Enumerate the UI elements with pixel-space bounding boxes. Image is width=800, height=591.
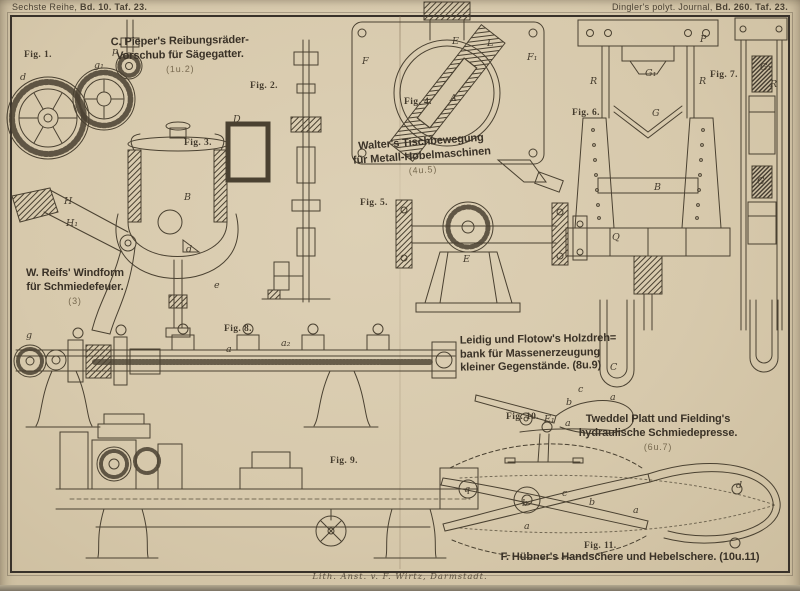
figure-label: Fig. 5. (360, 198, 388, 208)
figure-label: Fig. 6. (572, 108, 600, 118)
part-letter: R (590, 76, 597, 87)
part-letter: d (186, 244, 192, 255)
figure-label: Fig. 4. (404, 97, 432, 107)
part-letter: b (566, 397, 572, 408)
part-letter: a (610, 392, 616, 403)
part-letter: g₁ (94, 60, 104, 71)
part-letter: q (464, 484, 470, 495)
part-letter: a (226, 344, 232, 355)
part-letter: b (589, 497, 595, 508)
title-figref: (3) (10, 295, 140, 309)
part-letter: G₁ (645, 68, 656, 79)
part-letter: G (757, 176, 765, 187)
part-letter: p (112, 46, 118, 57)
part-letter: a (524, 521, 530, 532)
part-letter: P (700, 34, 706, 45)
part-letter: A (450, 93, 457, 104)
part-letter: B (654, 182, 661, 193)
part-letter: d (736, 480, 742, 491)
part-letter: D (233, 114, 241, 125)
figure-label: Fig. 2. (250, 81, 278, 91)
figure-label: Fig. 7. (710, 70, 738, 80)
part-letter: R (699, 76, 706, 87)
part-letter: B (184, 192, 191, 203)
title-figref: (6u.7) (552, 441, 764, 455)
part-letter: C (610, 362, 617, 373)
part-letter: a (565, 418, 571, 429)
plate-page: Sechste Reihe, Bd. 10. Taf. 23. Dingler'… (0, 0, 800, 591)
figure-label: Fig. 10. (506, 412, 539, 422)
figure-label: Fig. 8. (224, 324, 252, 334)
part-letter: c (562, 488, 567, 499)
figure-label: Fig. 11. (584, 541, 617, 551)
part-letter: R (770, 79, 777, 90)
fig3-square-frame-drawing (228, 124, 268, 180)
part-letter: L (487, 38, 493, 49)
part-letter: a (633, 505, 639, 516)
part-letter: H (64, 196, 72, 207)
fig9-lathe-front-drawing (56, 414, 478, 558)
figure-label: Fig. 3. (184, 138, 212, 148)
part-letter: E (463, 254, 470, 265)
part-letter: E₁ (544, 414, 555, 425)
part-letter: c (578, 384, 583, 395)
part-letter: G₁ (760, 62, 771, 73)
figure-label: Fig. 1. (24, 50, 52, 60)
title-line: W. Reifs' Windform (10, 267, 140, 281)
part-letter: F (362, 56, 369, 67)
scan-edge (0, 585, 800, 591)
fig8-lathe-top-drawing (14, 324, 456, 427)
title-leidig: Leidig und Flotow's Holzdreh= bank für M… (460, 331, 649, 375)
part-letter: Q (612, 232, 620, 243)
part-letter: E (452, 36, 459, 47)
part-letter: g (26, 330, 32, 341)
fig2-feed-column-drawing (262, 40, 330, 302)
title-reifs: W. Reifs' Windform für Schmiedefeuer. (3… (10, 267, 140, 309)
part-letter: a₂ (281, 338, 290, 349)
part-letter: F₁ (527, 52, 537, 63)
part-letter: H₁ (66, 218, 78, 229)
title-huebner: F. Hübner's Handschere und Hebelschere. … (470, 551, 790, 565)
fig5-rack-drawing (396, 200, 587, 312)
title-line: F. Hübner's Handschere und Hebelschere. … (470, 551, 790, 565)
title-line: hydraulische Schmiedepresse. (552, 427, 764, 441)
title-line: für Schmiedefeuer. (10, 281, 140, 295)
part-letter: e (214, 280, 220, 291)
part-letter: b (522, 498, 528, 509)
figure-label: Fig. 9. (330, 456, 358, 466)
part-letter: G (652, 108, 660, 119)
lithographer-imprint: Lith. Anst. v. F. Wirtz, Darmstadt. (0, 572, 800, 582)
title-line: Tweddel Platt und Fielding's (552, 413, 764, 427)
part-letter: d (20, 72, 26, 83)
title-tweddel: Tweddel Platt und Fielding's hydraulisch… (552, 413, 764, 455)
title-pieper: C. Pieper's Reibungsräder- Vorschub für … (96, 34, 265, 78)
